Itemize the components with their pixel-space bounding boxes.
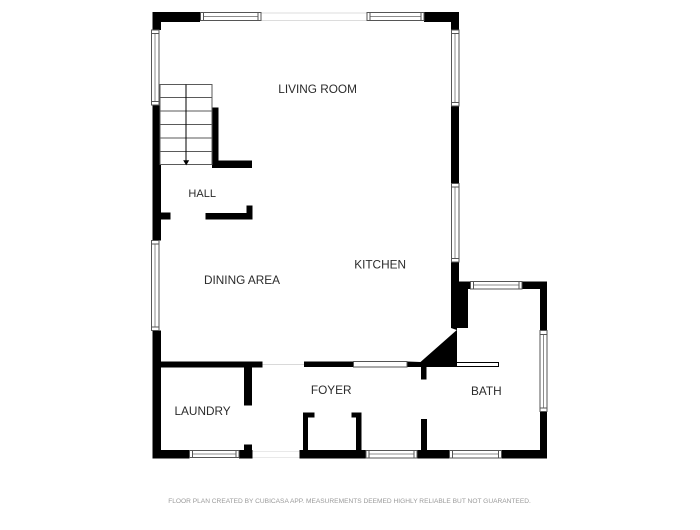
svg-text:BATH: BATH [471, 384, 502, 398]
svg-text:DINING AREA: DINING AREA [204, 273, 280, 287]
svg-text:LAUNDRY: LAUNDRY [175, 404, 231, 418]
svg-text:KITCHEN: KITCHEN [354, 258, 406, 272]
svg-text:FOYER: FOYER [311, 383, 352, 397]
svg-text:HALL: HALL [188, 188, 216, 200]
svg-text:FLOOR PLAN CREATED BY CUBICASA: FLOOR PLAN CREATED BY CUBICASA APP. MEAS… [168, 498, 531, 505]
svg-text:LIVING ROOM: LIVING ROOM [278, 82, 357, 96]
